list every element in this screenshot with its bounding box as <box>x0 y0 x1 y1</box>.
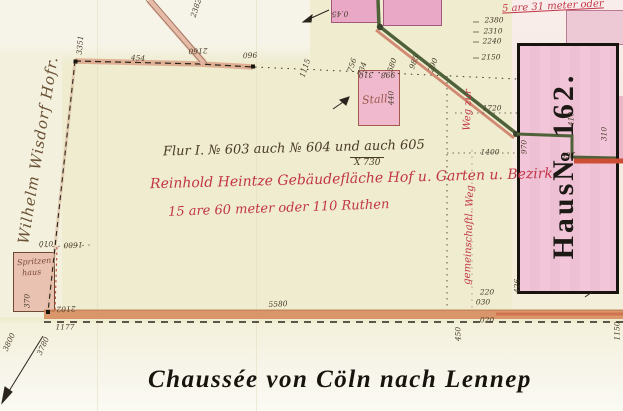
measurement-label: 220 <box>480 288 494 297</box>
bottom-road-line <box>44 310 623 322</box>
measurement-label: 1720 <box>482 104 501 113</box>
measurement-label: 2310 <box>483 27 502 36</box>
measurement-label: 1400 <box>480 148 499 157</box>
spritzenhaus-label-line2: haus <box>22 267 42 277</box>
measurement-label: 1150 <box>613 321 622 340</box>
measurement-label: 426 <box>513 279 522 293</box>
road-label-upper: Weg zur <box>462 89 474 131</box>
measurement-label: 010 <box>39 240 53 249</box>
measurement-label: 0.45 <box>331 9 348 19</box>
measurement-label: 450 <box>454 327 463 341</box>
measurement-label: 2240 <box>482 37 501 46</box>
parcel-number-fraction: X 730 <box>350 157 384 168</box>
measurement-label: 020 <box>480 316 494 325</box>
measurement-label: 370 <box>23 294 32 308</box>
top-boundary-line <box>75 61 253 67</box>
measurement-label: 998 <box>381 70 396 79</box>
measurement-label: 2102 <box>56 304 75 314</box>
measurement-label: 5580 <box>268 299 288 309</box>
measurement-label: 970 <box>520 140 529 154</box>
measurement-label: 1177 <box>55 323 74 332</box>
measurement-label: 030 <box>476 298 490 307</box>
measurement-label: 1600 <box>63 240 82 250</box>
measurement-label: 310 <box>600 127 609 141</box>
measurement-label: 310 <box>359 70 374 79</box>
measurement-label: 2380 <box>484 16 503 25</box>
haus-162-label: Haus№ 162. <box>547 73 581 260</box>
measurement-label: 960 <box>243 50 258 59</box>
cadastral-map: Flur I. № 603 auch № 604 und auch 605 X … <box>0 0 623 411</box>
measurement-label: 2160 <box>188 46 207 56</box>
measurement-label: 454 <box>131 53 146 63</box>
chaussee-road-title: Chaussée von Cöln nach Lennep <box>148 366 532 394</box>
measurement-label: 2150 <box>481 53 500 62</box>
measurement-label: 3351 <box>75 35 86 55</box>
stall-label: Stall <box>362 92 388 107</box>
